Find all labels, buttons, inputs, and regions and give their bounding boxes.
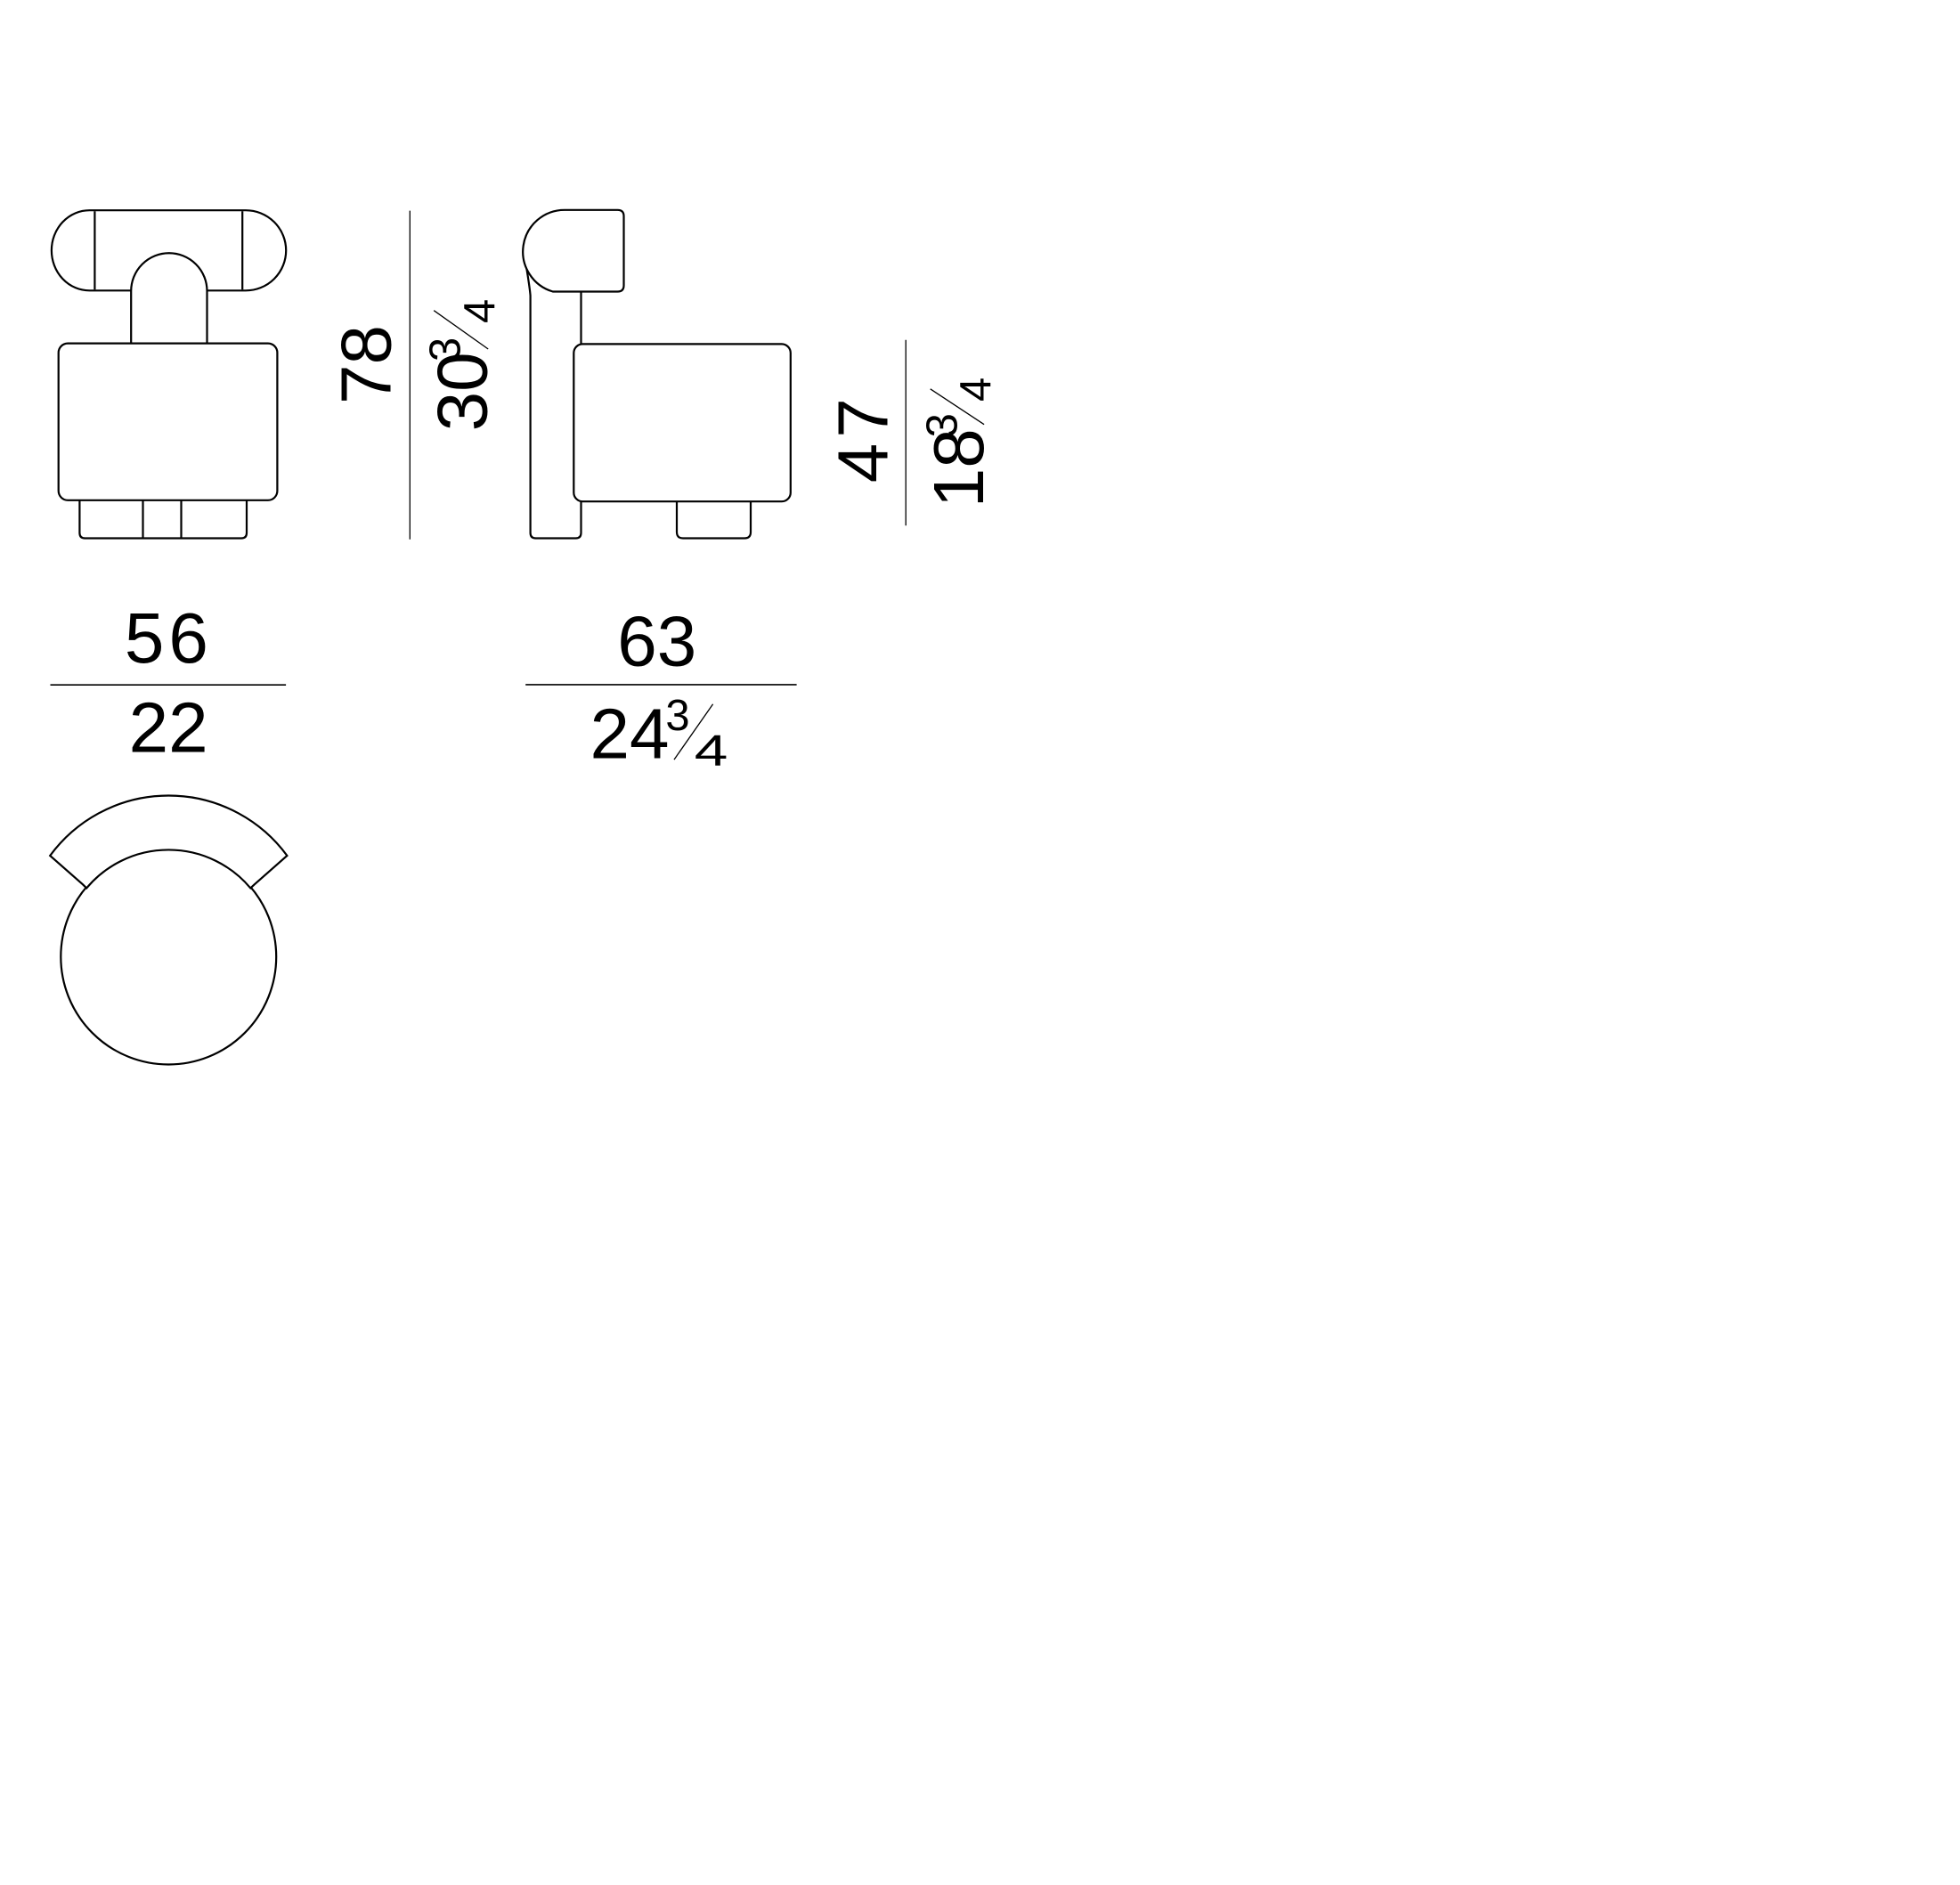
svg-text:3: 3 bbox=[665, 692, 689, 740]
svg-text:4: 4 bbox=[952, 378, 1000, 402]
svg-text:4: 4 bbox=[456, 299, 504, 323]
svg-text:18: 18 bbox=[919, 428, 998, 508]
svg-text:47: 47 bbox=[823, 393, 902, 483]
svg-text:22: 22 bbox=[129, 687, 208, 767]
svg-text:24: 24 bbox=[590, 695, 670, 774]
svg-text:4: 4 bbox=[695, 726, 728, 775]
svg-text:78: 78 bbox=[326, 325, 405, 404]
svg-text:56: 56 bbox=[125, 598, 213, 678]
svg-text:3: 3 bbox=[421, 337, 469, 362]
svg-text:30: 30 bbox=[423, 352, 502, 431]
svg-text:63: 63 bbox=[617, 602, 696, 681]
svg-text:3: 3 bbox=[919, 413, 967, 437]
